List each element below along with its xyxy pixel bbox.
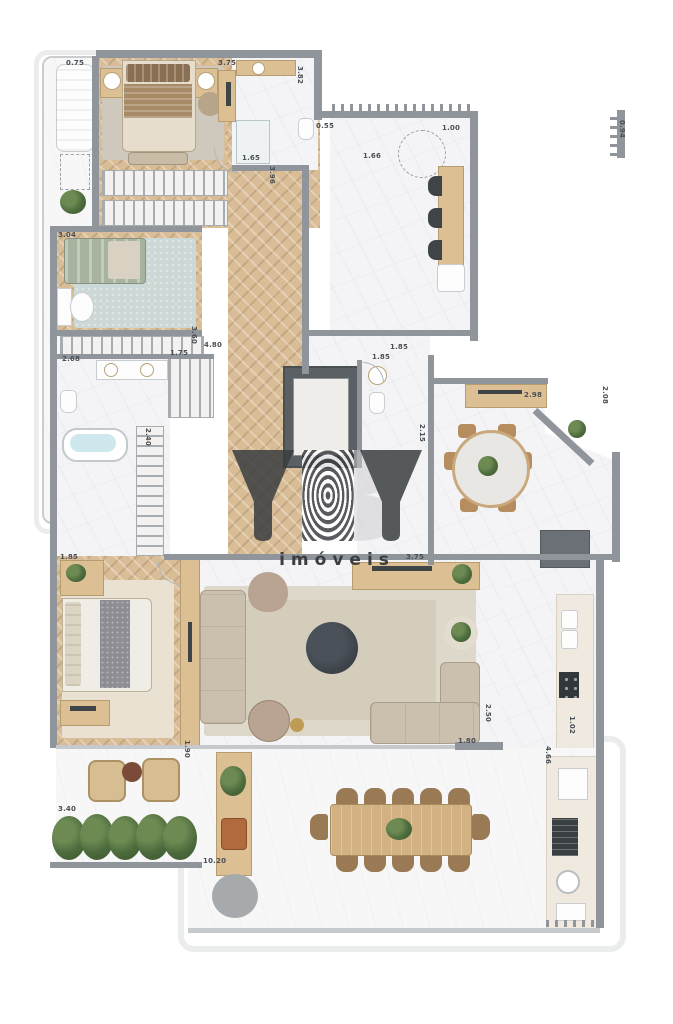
dim-label: 1.80	[458, 737, 476, 745]
terrace-chair-left	[310, 814, 328, 840]
coffee-table	[306, 622, 358, 674]
wall-bed2-bottom	[50, 330, 202, 336]
wall-dining-right	[612, 452, 620, 562]
letter-b-rings	[302, 450, 354, 541]
wall-dining-top	[434, 378, 548, 384]
wall-left-upper	[92, 56, 99, 228]
hedge-bush-5	[163, 816, 197, 860]
bench-lantern	[221, 818, 247, 850]
bbq-niche-top	[558, 768, 588, 800]
terrace-chair-right	[472, 814, 490, 840]
glass-door-terrace	[56, 745, 480, 749]
wall-lavabo-right	[428, 355, 434, 565]
bedroom3-plant	[66, 564, 86, 582]
wall-hall-right-upper	[302, 170, 309, 374]
dim-label: 3.96	[268, 166, 276, 184]
partition-tv	[188, 622, 192, 662]
terrace-chair-b5	[448, 854, 470, 872]
dim-label: 3.60	[190, 326, 198, 344]
planter-dashed	[60, 154, 90, 190]
dim-label: 3.75	[406, 553, 424, 561]
bedroom3-tv	[70, 706, 96, 711]
lamp-right	[197, 72, 215, 90]
terrace-chair-b1	[336, 854, 358, 872]
dim-label: 0.75	[66, 59, 84, 67]
dim-label: 1.65	[242, 154, 260, 162]
balcony-plant-top	[60, 190, 86, 214]
watermark-tagline: imóveis	[262, 550, 412, 570]
wall-foyer-top	[309, 330, 478, 336]
dim-label: 2.08	[601, 386, 609, 404]
dim-label: 1.85	[372, 353, 390, 361]
cooktop	[559, 672, 579, 698]
bedroom2-pillow	[108, 241, 140, 279]
master-tv	[226, 82, 231, 106]
window-ticks-top-right	[332, 104, 470, 111]
floor-plan: imóveis 0.753.753.820.551.661.000.941.65…	[0, 0, 673, 1024]
yby-logo-graphic	[232, 448, 422, 548]
dim-label: 3.40	[58, 805, 76, 813]
terrace-chair-b3	[392, 854, 414, 872]
wall-top	[96, 50, 322, 58]
wicker-chair-2	[142, 758, 180, 802]
bbq-niche-bottom	[556, 903, 586, 921]
console-plant	[452, 564, 472, 584]
bath-sink	[252, 62, 265, 75]
kitchen-sink-1	[561, 610, 578, 629]
closet-rack-5	[168, 356, 214, 418]
kitchen-sink-2	[561, 630, 578, 649]
wall-left-mid	[50, 226, 57, 560]
side-table-small	[437, 264, 465, 292]
dim-label: 1.85	[390, 343, 408, 351]
dim-label: 2.15	[418, 424, 426, 442]
dim-label: 2.40	[144, 428, 152, 446]
terrace-chair-b2	[364, 854, 386, 872]
sofa-main	[200, 590, 246, 724]
dim-label: 3.75	[218, 59, 236, 67]
bath-toilet	[298, 118, 314, 140]
bed-bench	[128, 152, 188, 165]
dim-label: 1.02	[568, 716, 576, 734]
wall-topright-right	[470, 111, 478, 341]
terrace-chair-b4	[420, 854, 442, 872]
bedroom3-runner	[100, 600, 130, 688]
terrace-bottom-edge	[188, 928, 600, 933]
terrace-side-table	[122, 762, 142, 782]
bedroom3-pillows	[65, 602, 81, 686]
lavabo-toilet	[369, 392, 385, 414]
master-bed-blanket	[124, 84, 192, 118]
bar-stool-2	[428, 208, 442, 228]
fridge-cabinet	[540, 530, 590, 568]
wicker-chair-1	[88, 760, 126, 802]
bbq-grill	[552, 818, 578, 856]
closet-rack-2	[102, 200, 228, 226]
bath-vanity	[236, 60, 296, 76]
dining-corner-plant	[568, 420, 586, 438]
window-ticks-bbq	[546, 920, 600, 927]
bar-stool-1	[428, 176, 442, 196]
living-plant	[451, 622, 471, 642]
dim-label: 4.80	[204, 341, 222, 349]
armchair-bottom	[248, 700, 290, 742]
dim-label: 1.85	[60, 553, 78, 561]
bathroom2-toilet	[60, 390, 77, 413]
dim-label: 1.00	[442, 124, 460, 132]
bathroom2-sink1	[104, 363, 118, 377]
bedroom3-tv-stand	[60, 700, 110, 726]
chaise-lounge	[56, 64, 94, 152]
dim-label: 3.04	[58, 231, 76, 239]
master-bed-pillows	[126, 64, 190, 82]
window-ticks-stub	[610, 112, 617, 156]
bathroom2-sink2	[140, 363, 154, 377]
dim-label: 1.66	[363, 152, 381, 160]
wall-top-step	[314, 50, 322, 120]
dim-label: 1.75	[170, 349, 188, 357]
dining-table-plant	[478, 456, 498, 476]
dim-label: 1.90	[183, 740, 191, 758]
bedroom2-chair	[70, 292, 94, 322]
dim-label: 4.66	[544, 746, 552, 764]
dim-label: 3.82	[296, 66, 304, 84]
closet-rack-1	[102, 170, 228, 196]
fire-pit-circle	[212, 874, 258, 918]
wall-topright-top	[322, 111, 478, 118]
bench-plant	[220, 766, 246, 796]
wall-hedge-bottom	[50, 862, 202, 868]
dim-label: 0.94	[618, 120, 626, 138]
bbq-sink	[556, 870, 580, 894]
wall-kitchen-right	[596, 556, 604, 928]
elevator-cab	[293, 378, 349, 456]
dim-label: 2.68	[62, 355, 80, 363]
wall-bed3-left	[50, 556, 57, 748]
dim-label: 0.55	[316, 122, 334, 130]
sideboard-decor	[478, 390, 522, 394]
gold-pouf	[290, 718, 304, 732]
letter-y-left	[232, 450, 294, 541]
dim-label: 2.50	[484, 704, 492, 722]
lamp-left	[103, 72, 121, 90]
bathtub-water	[70, 434, 116, 452]
watermark-logo	[232, 448, 422, 548]
dim-label: 10.20	[203, 857, 226, 865]
dim-label: 2.98	[524, 391, 542, 399]
armchair-top	[248, 572, 288, 612]
bar-stool-3	[428, 240, 442, 260]
terrace-table-plant	[386, 818, 412, 840]
